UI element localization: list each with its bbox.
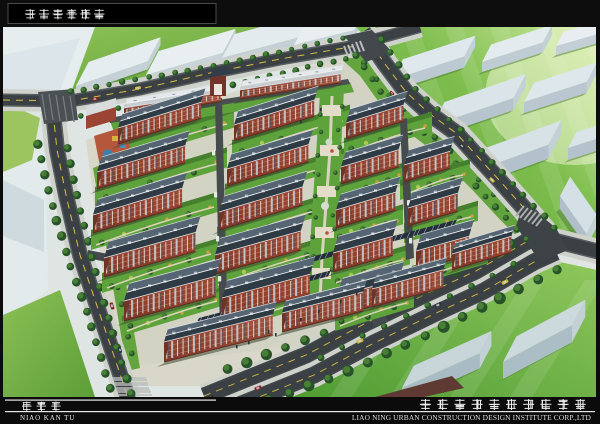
svg-text:NIAO KAN TU: NIAO KAN TU: [20, 414, 75, 422]
svg-text:LIAO NING URBAN CONSTRUCTION D: LIAO NING URBAN CONSTRUCTION DESIGN INST…: [352, 413, 592, 422]
